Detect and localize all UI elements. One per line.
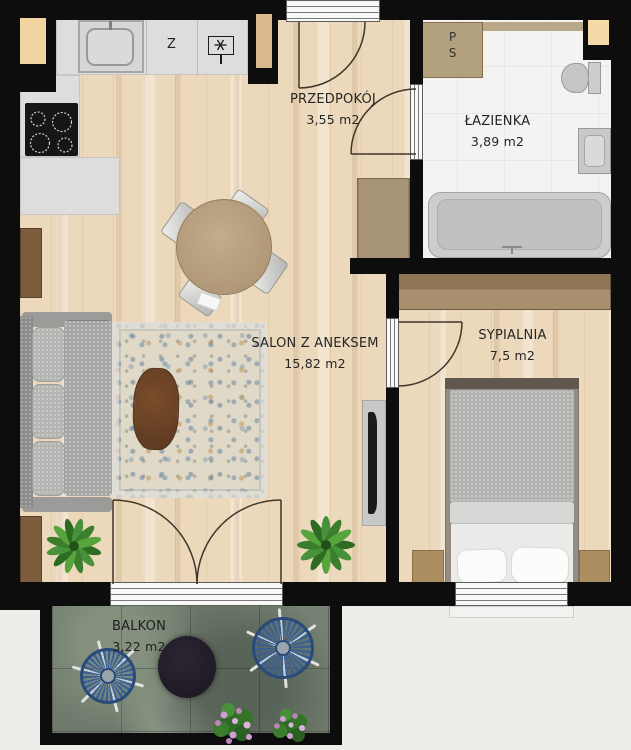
bedroom-wardrobe xyxy=(398,274,611,310)
toilet-tank xyxy=(588,62,601,94)
living-room-label: SALON Z ANEKSEM 15,82 m2 xyxy=(240,334,390,374)
bathroom-sink-basin xyxy=(584,135,605,167)
pillow xyxy=(511,546,570,585)
cabinet xyxy=(20,516,42,586)
dishwasher-label: Z xyxy=(146,37,197,55)
entrance-door xyxy=(286,0,380,22)
counter-divider xyxy=(197,18,198,75)
sofa-cushion xyxy=(32,441,65,496)
sofa-seat xyxy=(64,320,112,496)
washer-label: P xyxy=(423,29,482,45)
bedroom-label: SYPIALNIA 7,5 m2 xyxy=(455,326,570,366)
bathtub-basin xyxy=(437,199,602,250)
bathroom-label: ŁAZIENKA 3,89 m2 xyxy=(440,112,555,152)
bathroom-shelf xyxy=(483,22,583,31)
bathtub-faucet-icon xyxy=(511,246,513,254)
hallway-label: PRZEDPOKÓJ 3,55 m2 xyxy=(273,90,393,130)
balcony-label: BALKON 3,22 m2 xyxy=(79,617,199,657)
coffee-table xyxy=(132,367,181,451)
pillow xyxy=(456,548,507,584)
sideboard xyxy=(20,228,42,298)
wall-right xyxy=(611,0,631,606)
dining-table xyxy=(176,199,272,295)
toilet-bowl xyxy=(561,63,589,93)
balcony-door xyxy=(110,582,283,606)
tv-screen xyxy=(368,412,377,514)
kitchen-counter-peninsula xyxy=(20,157,120,215)
shaft xyxy=(20,18,46,64)
tall-cabinet xyxy=(256,14,272,68)
balcony-wall-right xyxy=(330,606,342,745)
sofa-cushion xyxy=(32,384,65,439)
faucet-icon xyxy=(109,21,112,30)
hallway-wardrobe xyxy=(357,178,410,260)
potted-plant xyxy=(295,514,357,576)
potted-plant xyxy=(44,516,104,576)
balcony-chair xyxy=(252,617,314,679)
bedroom-window xyxy=(455,582,568,606)
floor-plan: Z P xyxy=(0,0,631,750)
shaft xyxy=(588,20,609,45)
bathroom-door xyxy=(410,84,423,160)
sofa-armrest xyxy=(22,497,112,512)
window-sill xyxy=(449,606,574,618)
sofa-cushion xyxy=(32,327,65,382)
balcony-wall-left xyxy=(40,606,52,745)
cooktop xyxy=(25,103,78,156)
bed-blanket xyxy=(450,390,574,502)
wall-bathroom-bedroom xyxy=(350,258,631,274)
hood-icon xyxy=(208,36,234,55)
wall-bottom-left-corner xyxy=(0,582,42,610)
flower-pot xyxy=(266,702,314,750)
bed-footboard xyxy=(445,378,579,389)
dryer-label: S xyxy=(423,45,482,61)
sink-basin xyxy=(86,28,134,66)
hood-stem xyxy=(220,55,222,64)
flower-pot xyxy=(205,697,261,750)
bed-blanket-fold xyxy=(450,502,574,524)
washer-dryer-column: P S xyxy=(422,22,483,78)
